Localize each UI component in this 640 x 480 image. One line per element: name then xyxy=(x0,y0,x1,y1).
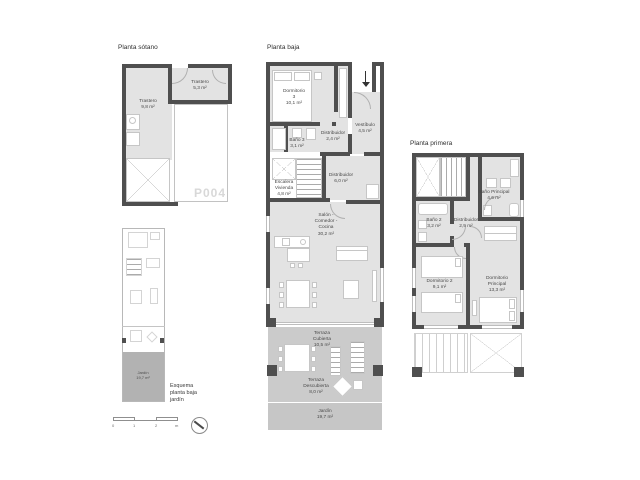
window xyxy=(482,325,512,329)
pillar xyxy=(266,318,276,327)
pillow xyxy=(509,299,515,309)
chair xyxy=(279,282,284,288)
room-name: Terraza Descubierta xyxy=(301,378,331,390)
room-area: 9,8 m² xyxy=(136,105,160,111)
scale-tick xyxy=(177,417,178,421)
pillar xyxy=(374,318,384,327)
room-area: 5,3 m² xyxy=(188,86,212,92)
room-area: 30,2 m² xyxy=(310,232,342,238)
wall xyxy=(372,62,376,92)
stairs-landing xyxy=(416,157,440,197)
wall xyxy=(266,62,352,66)
window xyxy=(424,325,458,329)
wall xyxy=(482,217,524,221)
room-area: 10,5 m² xyxy=(307,343,337,349)
chair xyxy=(279,302,284,308)
appliance xyxy=(126,132,140,146)
sofa-back-line xyxy=(337,250,367,251)
wall xyxy=(334,66,338,112)
wall xyxy=(122,202,178,206)
entrance-arrow-line xyxy=(365,71,366,82)
bathtub xyxy=(509,203,519,217)
mini-bath xyxy=(146,258,160,268)
room-label-terraza-cubierta: Terraza Cubierta 10,5 m² xyxy=(307,331,337,350)
garden-border-line xyxy=(268,402,382,403)
wall xyxy=(270,122,320,126)
armchair xyxy=(343,280,359,299)
wardrobe xyxy=(339,68,347,118)
kitchen-island xyxy=(287,248,310,262)
sun-lounger xyxy=(330,346,341,376)
room-area: 3,2 m² xyxy=(423,224,445,230)
chair xyxy=(312,282,317,288)
plan-title-baja: Planta baja xyxy=(267,44,300,51)
room-name: Dormitorio Principal xyxy=(481,276,513,288)
sink-basin xyxy=(129,117,136,124)
wardrobe xyxy=(366,184,379,199)
mini-table xyxy=(130,290,142,304)
stairs xyxy=(126,158,170,202)
window xyxy=(520,290,524,312)
wall xyxy=(412,243,450,247)
floorplan-sheet: Planta sótano P004 Trastero 9,8 m² Trast… xyxy=(0,0,640,480)
cabinet xyxy=(372,270,377,302)
scale-tick xyxy=(134,417,135,421)
scale-bar-segment xyxy=(156,417,178,418)
chair xyxy=(312,292,317,298)
room-area: 9,1 m² xyxy=(424,285,455,291)
window xyxy=(412,268,416,288)
scale-tick xyxy=(113,417,114,421)
room-name: Escalera Vivienda xyxy=(271,180,297,192)
room-area: 3,1 m² xyxy=(286,144,308,150)
wall xyxy=(466,157,470,201)
pillow xyxy=(455,258,461,267)
room-label-dormitorio2: Dormitorio 2 9,1 m² xyxy=(424,279,455,291)
pillow xyxy=(274,72,292,81)
wall xyxy=(346,200,384,204)
plan-title-sotano: Planta sótano xyxy=(118,44,158,51)
wall xyxy=(478,157,482,221)
wall xyxy=(364,152,384,156)
window xyxy=(266,216,270,232)
chair xyxy=(278,366,283,372)
mini-pillar xyxy=(122,338,126,343)
chair xyxy=(311,356,316,362)
room-label-jardin: Jardín 19,7 m² xyxy=(311,409,339,421)
wall xyxy=(332,122,336,126)
stairs xyxy=(296,158,322,198)
window xyxy=(520,200,524,218)
chair xyxy=(312,302,317,308)
wall xyxy=(348,62,352,92)
room-label-bano-principal: Baño Principal 4,6 m² xyxy=(478,190,510,202)
pillow xyxy=(294,72,310,81)
wall xyxy=(122,64,172,68)
wall xyxy=(412,197,470,201)
pillar xyxy=(514,367,524,377)
room-area: 4,6 m² xyxy=(478,196,510,202)
room-label-distribuidor2: Distribuidor 6,0 m² xyxy=(328,173,354,185)
wall xyxy=(348,92,352,118)
window xyxy=(266,288,270,304)
room-area: 13,3 m² xyxy=(481,288,513,294)
stool xyxy=(290,263,295,268)
hob xyxy=(282,238,290,246)
wall xyxy=(348,134,352,154)
room-name: Salón - Comedor - Cocina xyxy=(310,213,342,232)
dining-table xyxy=(286,280,310,308)
mini-stairs xyxy=(126,258,142,276)
sink xyxy=(486,178,497,188)
corridor xyxy=(470,157,478,201)
room-area: 4,5 m² xyxy=(352,129,378,135)
room-name: Terraza Cubierta xyxy=(307,331,337,343)
mini-divider xyxy=(122,326,165,327)
window xyxy=(412,296,416,312)
room-label-vestibulo: Vestíbulo 4,5 m² xyxy=(352,123,378,135)
room-label-terraza-descubierta: Terraza Descubierta 8,0 m² xyxy=(301,378,331,397)
wall xyxy=(228,64,232,104)
esquema-caption: Esquema planta baja jardín xyxy=(170,383,204,404)
scale-tick xyxy=(156,417,157,421)
chair xyxy=(311,366,316,372)
sliding-glass-door xyxy=(276,322,374,325)
room-name: Dormitorio 3 xyxy=(281,89,307,101)
room-area: 4,8 m² xyxy=(271,192,297,198)
scale-bar xyxy=(113,420,178,421)
sofa xyxy=(336,246,368,261)
sun-lounger xyxy=(350,341,365,374)
room-label-bano2: Baño 2 3,2 m² xyxy=(423,218,445,230)
wall xyxy=(188,64,232,68)
mini-closet xyxy=(150,232,160,240)
stool xyxy=(298,263,303,268)
pillar xyxy=(412,367,422,377)
room-label-distribuidor1: Distribuidor 2,4 m² xyxy=(318,131,348,143)
chair xyxy=(278,346,283,352)
mini-sofa xyxy=(150,288,158,304)
wall xyxy=(168,100,232,104)
stairs-landing xyxy=(272,158,296,180)
stairs xyxy=(440,157,466,197)
room-label-bano3: Baño 3 3,1 m² xyxy=(286,138,308,150)
scale-label-m: m xyxy=(175,423,178,428)
plan-title-primera: Planta primera xyxy=(410,140,452,147)
toilet xyxy=(418,232,427,242)
shower xyxy=(510,159,519,177)
mini-outdoor-table xyxy=(130,330,142,342)
scale-label-0: 0 xyxy=(112,423,114,428)
pillow xyxy=(509,311,515,321)
side-table xyxy=(353,380,363,390)
chair xyxy=(279,292,284,298)
room-label-trastero1: Trastero 9,8 m² xyxy=(136,99,160,111)
pillow xyxy=(455,294,461,303)
entrance-arrow-icon xyxy=(362,82,370,87)
chair xyxy=(278,356,283,362)
room-label-dormitorio3: Dormitorio 3 10,1 m² xyxy=(281,89,307,108)
pergola xyxy=(414,333,468,373)
pillar xyxy=(373,365,383,376)
bathtub xyxy=(418,203,448,215)
wardrobe-rail xyxy=(485,233,516,234)
room-area: 19,7 m² xyxy=(129,375,157,380)
wall xyxy=(322,156,326,202)
nightstand xyxy=(314,72,322,80)
mini-bed xyxy=(128,232,148,248)
wardrobe xyxy=(272,128,286,150)
wall xyxy=(266,62,270,326)
room-area: 6,0 m² xyxy=(328,179,354,185)
room-area: 10,1 m² xyxy=(281,101,307,107)
mini-pillar xyxy=(160,338,164,343)
room-area: 2,4 m² xyxy=(318,137,348,143)
kitchen-sink xyxy=(300,239,306,245)
scale-label-2: 2 xyxy=(155,423,157,428)
sink xyxy=(292,128,302,138)
bench xyxy=(472,300,477,316)
wall xyxy=(466,247,470,329)
room-area: 19,7 m² xyxy=(311,415,339,421)
parking-number: P004 xyxy=(186,186,226,200)
room-label-salon: Salón - Comedor - Cocina 30,2 m² xyxy=(310,213,342,238)
esquema-garden-label: Jardín 19,7 m² xyxy=(129,370,157,380)
sink xyxy=(500,178,511,188)
scale-bar-segment xyxy=(113,417,134,418)
room-area: 2,9 m² xyxy=(451,224,481,230)
room-label-dormitorio-principal: Dormitorio Principal 13,3 m² xyxy=(481,276,513,295)
pillar xyxy=(267,365,277,376)
scale-label-1: 1 xyxy=(133,423,135,428)
room-label-escalera: Escalera Vivienda 4,8 m² xyxy=(271,180,297,199)
room-label-distribuidor-p1: Distribuidor 2,9 m² xyxy=(451,218,481,230)
room-area: 8,0 m² xyxy=(301,390,331,396)
window xyxy=(380,268,384,302)
room-label-trastero2: Trastero 5,3 m² xyxy=(188,80,212,92)
